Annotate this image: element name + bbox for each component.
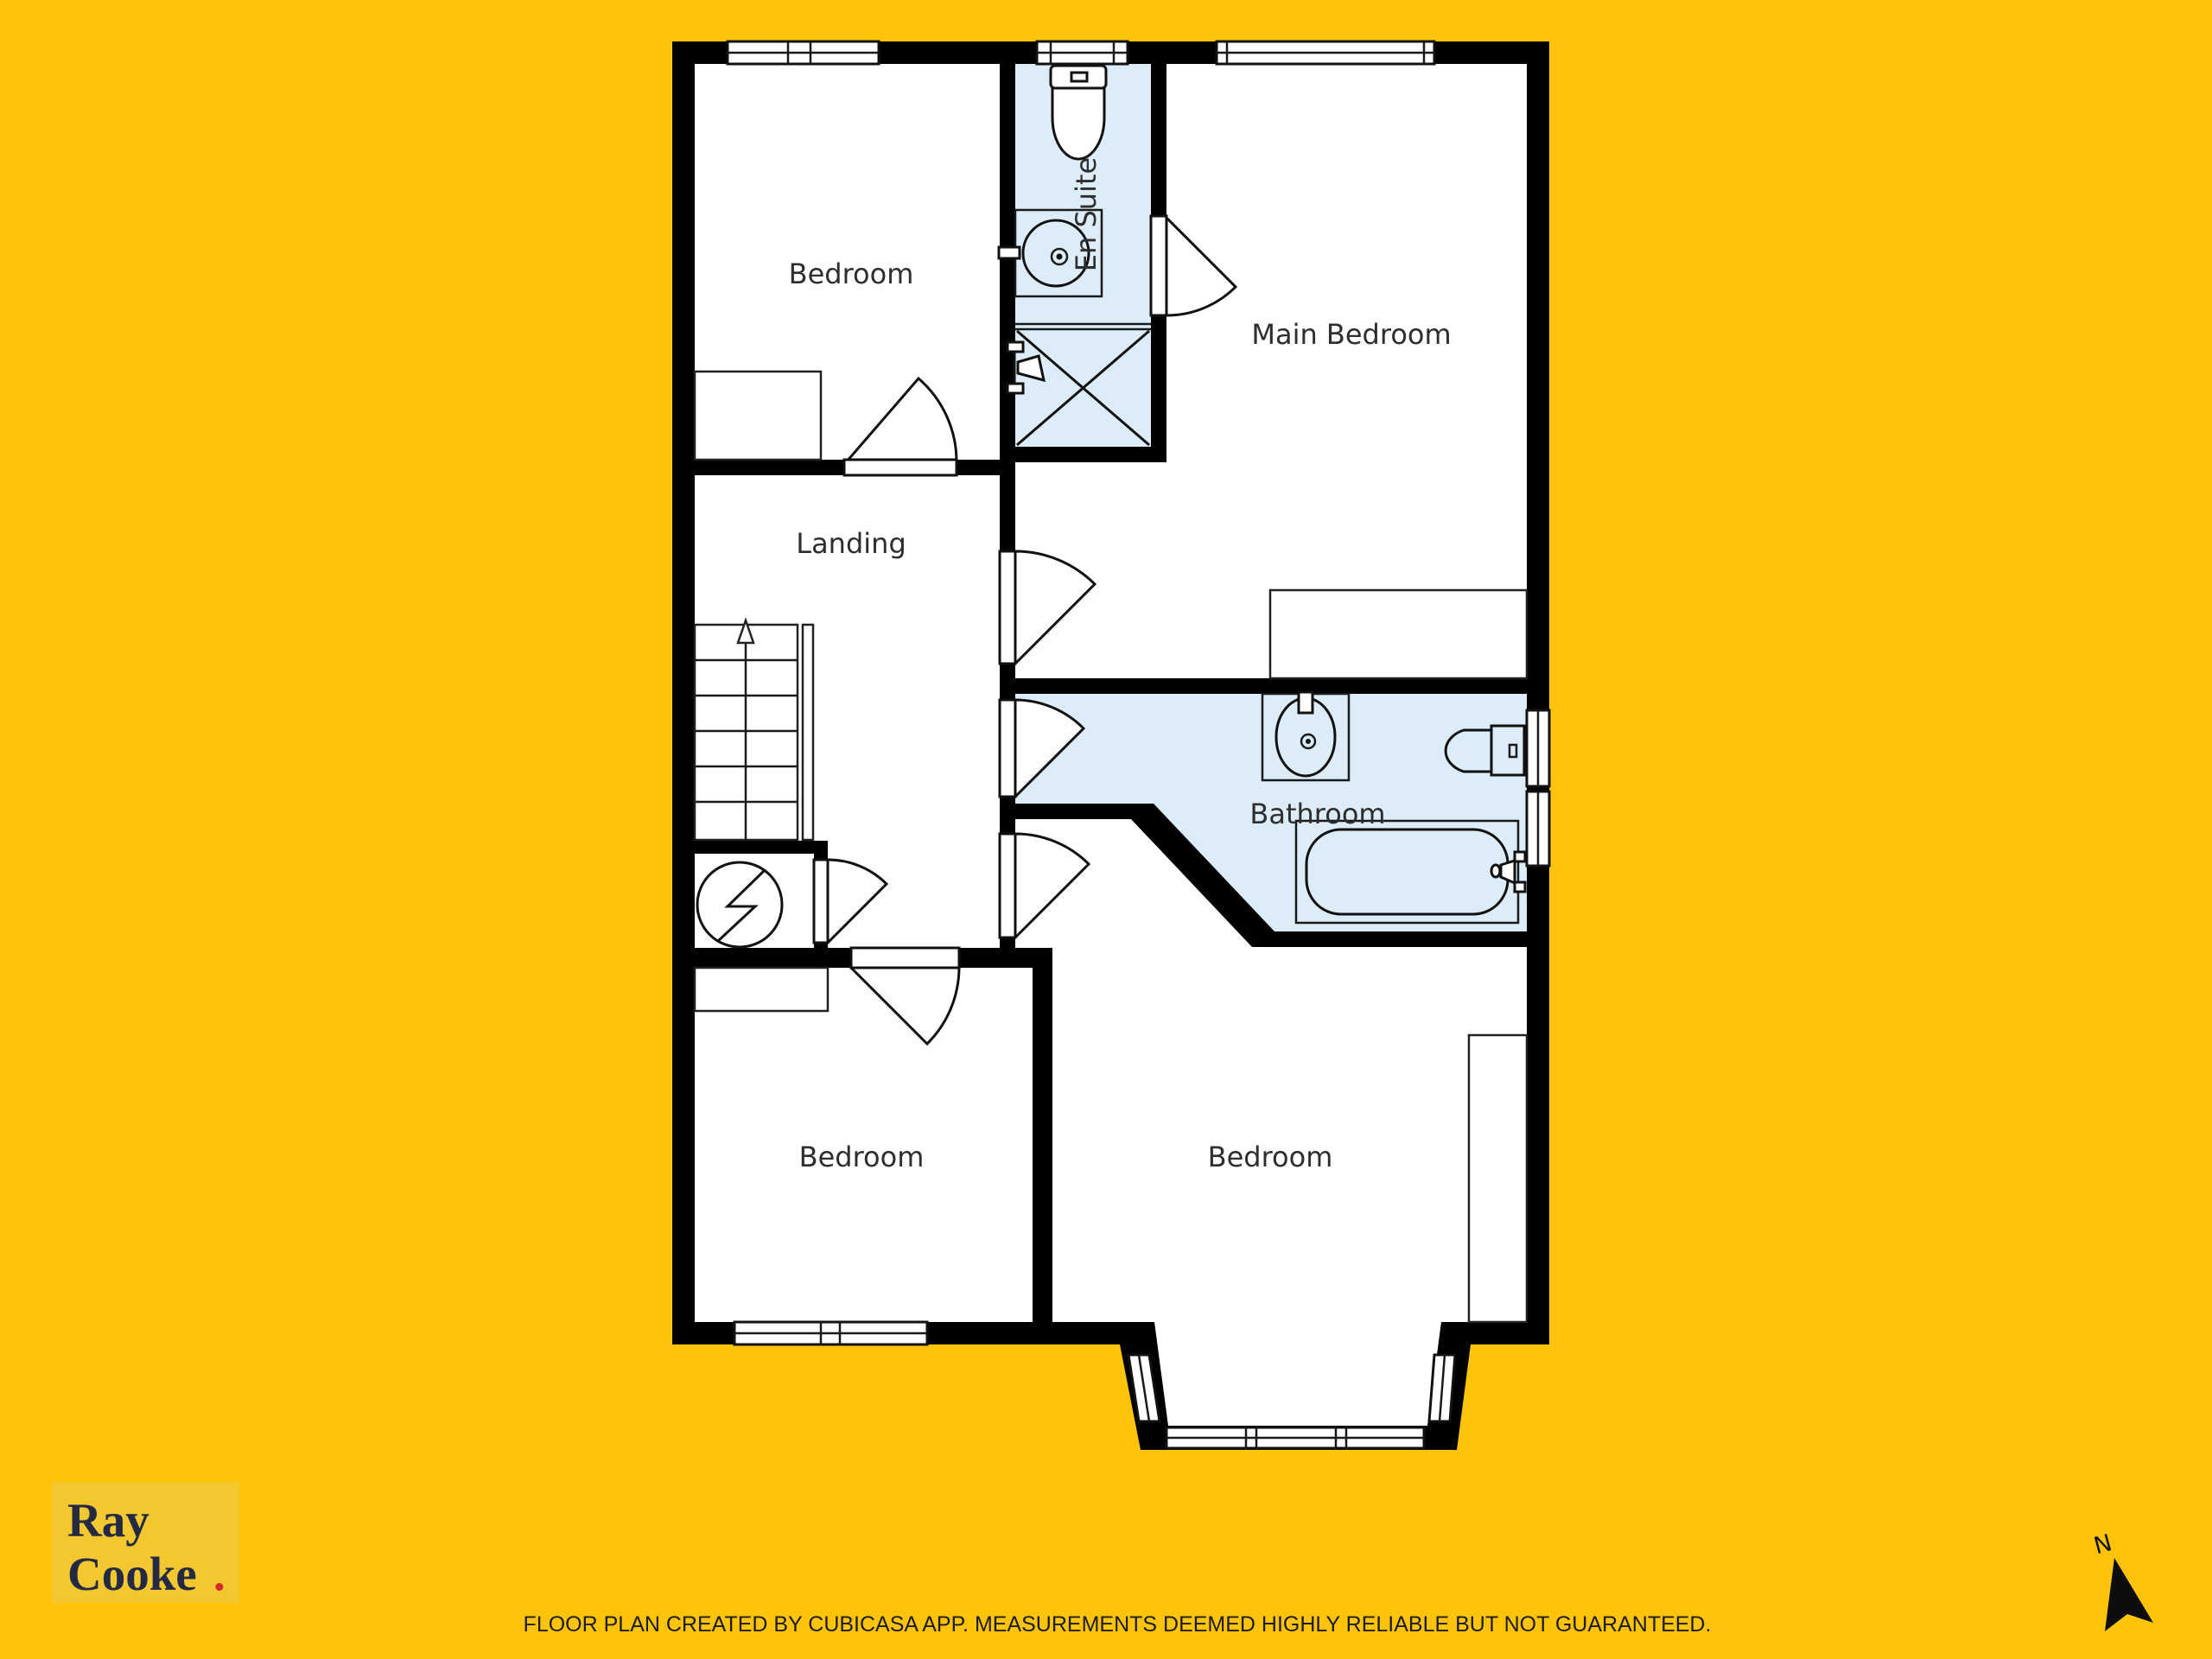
wardrobe (695, 968, 828, 1011)
room-label-bedroom-bottom-right: Bedroom (1208, 1141, 1333, 1173)
agency-logo: Ray Cooke . (52, 1482, 239, 1603)
window-icon (728, 41, 879, 64)
logo-line1: Ray (67, 1494, 149, 1547)
window-icon (734, 1322, 927, 1344)
toilet-icon (1051, 66, 1106, 159)
disclaimer-text: FLOOR PLAN CREATED BY CUBICASA APP. MEAS… (524, 1612, 1712, 1637)
floor-plan-canvas: Bedroom En Suite Main Bedroom Landing Ba… (0, 0, 2212, 1659)
bay-window-interior (1154, 1322, 1441, 1426)
logo-accent-dot: . (213, 1548, 226, 1600)
staircase-icon (695, 620, 813, 840)
floor-plan-page: Bedroom En Suite Main Bedroom Landing Ba… (0, 0, 2212, 1659)
window-icon (1037, 41, 1128, 64)
stair-handrail (803, 625, 813, 840)
shower-head-icon (1007, 342, 1023, 352)
wardrobe (1469, 1035, 1527, 1322)
window-icon (1527, 710, 1549, 786)
window-icon (1527, 791, 1549, 866)
window-icon (1217, 41, 1434, 64)
room-label-bedroom-bottom-left: Bedroom (799, 1141, 925, 1173)
room-label-en-suite: En Suite (1070, 157, 1103, 271)
wardrobe (1270, 590, 1527, 678)
water-heater-icon (697, 862, 782, 947)
tap-icon (1515, 852, 1525, 861)
room-label-bedroom-top-left: Bedroom (789, 257, 914, 290)
wardrobe (695, 372, 821, 460)
room-label-landing: Landing (796, 527, 906, 560)
tap-icon (1299, 692, 1313, 713)
room-label-main-bedroom: Main Bedroom (1251, 318, 1451, 351)
tap-icon (999, 247, 1020, 258)
room-label-bathroom: Bathroom (1249, 798, 1385, 830)
logo-line2: Cooke (67, 1548, 197, 1600)
